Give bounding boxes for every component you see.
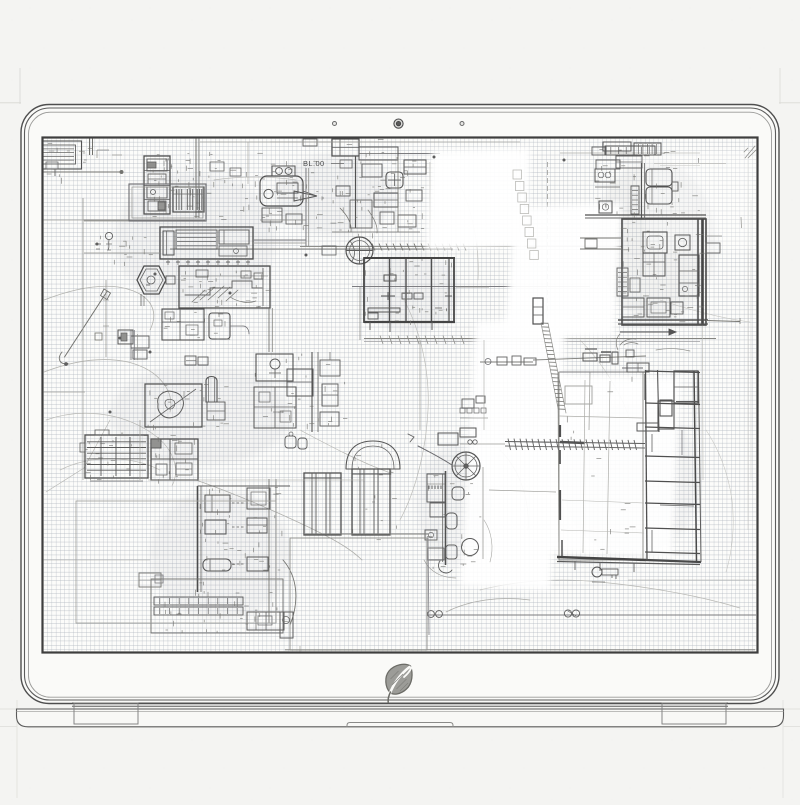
svg-text:BL.00: BL.00 <box>303 159 325 168</box>
